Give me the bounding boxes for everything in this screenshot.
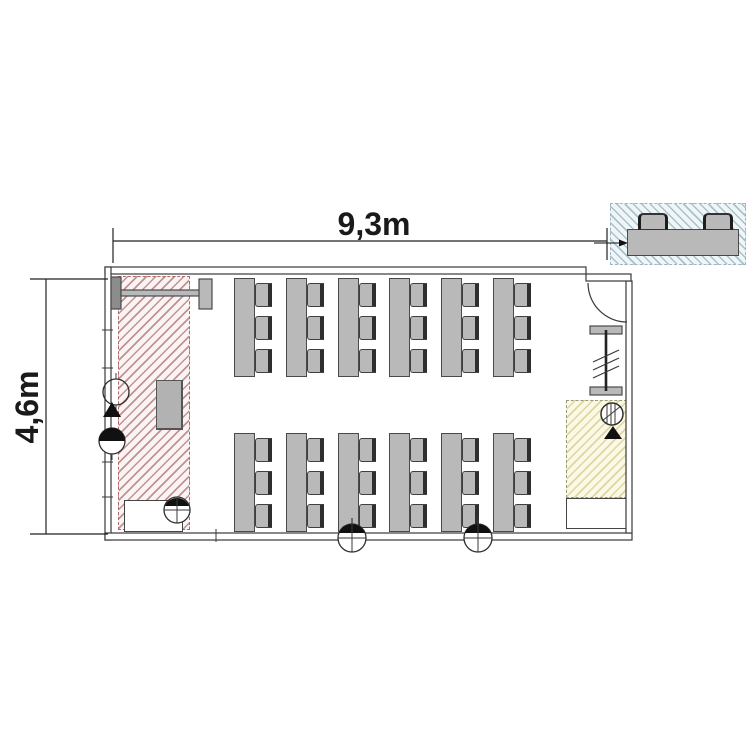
height-dimension-label: 4,6m — [10, 332, 44, 482]
hatched-circle-icon — [601, 403, 623, 425]
top-wall — [105, 267, 586, 274]
floor-socket-icon — [464, 518, 492, 552]
bottom-wall — [105, 533, 632, 540]
screen-mount-left — [111, 277, 121, 309]
coat-rack-icon — [590, 326, 622, 395]
right-wall — [626, 281, 632, 533]
screen-bar — [121, 290, 200, 296]
screen-mount-right — [199, 279, 212, 309]
width-dimension-label: 9,3m — [299, 207, 449, 241]
wall-socket-icon — [99, 428, 125, 460]
direction-triangle-icon — [604, 426, 622, 439]
plan-linework — [0, 0, 750, 750]
floor-socket-icon — [164, 497, 190, 523]
door-swing-arc — [588, 283, 627, 322]
projection-screen-icon — [111, 277, 212, 309]
door-leaf — [586, 274, 631, 281]
floor-socket-icon — [338, 518, 366, 552]
floor-plan-canvas: 9,3m 4,6m — [0, 0, 750, 750]
